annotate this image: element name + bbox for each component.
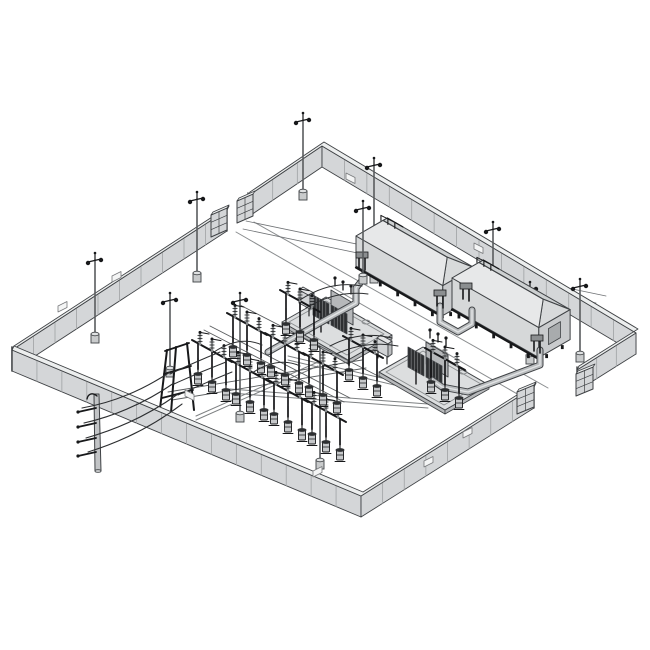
switchgear-bay [227, 304, 267, 375]
jumper-wire [214, 341, 262, 352]
transmission-pole [76, 394, 101, 473]
gate-leaf [211, 205, 229, 237]
substation-isometric-drawing [0, 0, 650, 650]
dead-end-a-frame [159, 343, 194, 417]
gate-leaf [237, 191, 255, 223]
substation-illustration-stage [0, 0, 650, 650]
gate-leaf [517, 382, 536, 414]
control-cabinet [377, 335, 392, 364]
